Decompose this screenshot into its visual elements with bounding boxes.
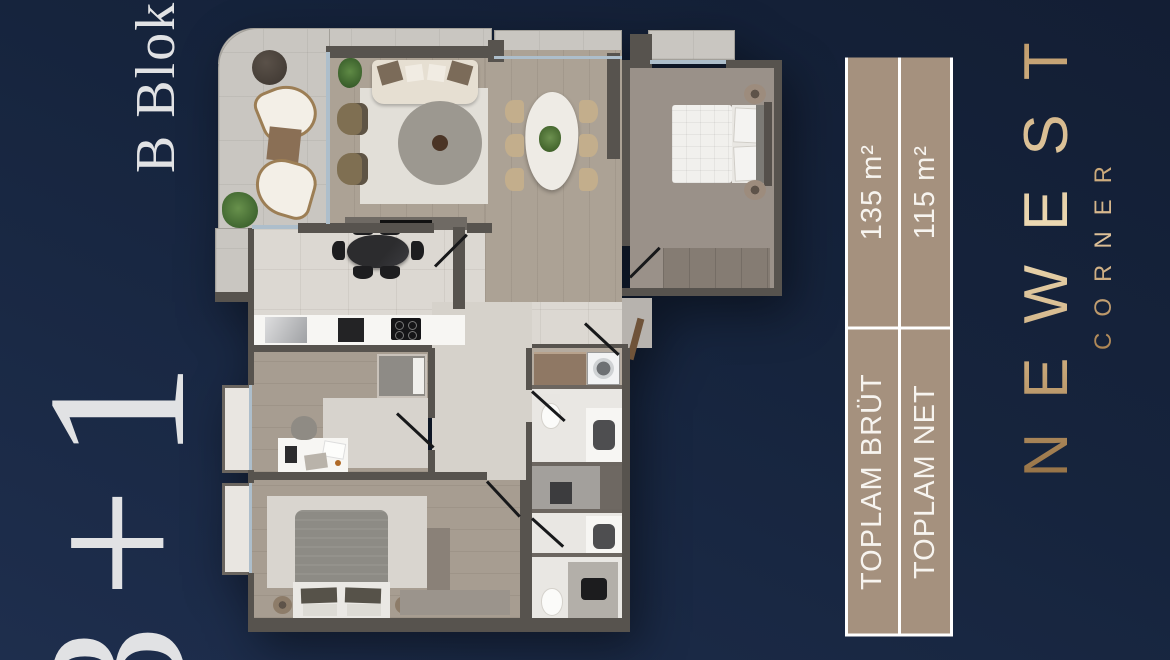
spec-table: TOPLAM BRÜT 135 m² TOPLAM NET 115 m² (845, 57, 953, 636)
burner (408, 331, 417, 340)
pillow-dark (345, 587, 382, 603)
armchair (337, 103, 368, 135)
balcony-3 (222, 483, 250, 575)
wall (622, 348, 630, 630)
wall (622, 60, 630, 246)
pillow-dark (301, 587, 338, 603)
desk-monitor (285, 446, 297, 463)
spec-table-grid: TOPLAM BRÜT 135 m² TOPLAM NET 115 m² (845, 57, 953, 636)
wall (215, 292, 251, 302)
wall (428, 348, 435, 418)
wall (298, 223, 434, 233)
desk-item (304, 453, 328, 471)
sofa-pillow (427, 64, 446, 82)
window (249, 385, 252, 470)
wall (532, 553, 622, 557)
wall (622, 288, 782, 296)
wall (630, 34, 652, 62)
master-balcony (648, 30, 735, 60)
wall (467, 223, 492, 233)
sofa-pillow (405, 64, 424, 82)
wall (532, 385, 622, 389)
master-wardrobe (663, 248, 770, 288)
armchair (337, 153, 368, 185)
terrace-side-table (266, 126, 301, 162)
shower-niche (600, 464, 622, 511)
terrace (215, 228, 251, 294)
bedroom-3-wardrobe (427, 528, 450, 590)
dining-chair (505, 168, 524, 191)
burner (408, 321, 417, 330)
wall (526, 348, 532, 390)
burner (395, 321, 404, 330)
desk-accent (335, 460, 341, 466)
kitchen-chair (380, 266, 400, 279)
burner (395, 331, 404, 340)
block-label: B Blok (121, 0, 191, 177)
double-bed-blanket (295, 510, 388, 584)
wall (532, 462, 622, 466)
headboard (764, 102, 772, 186)
sink-basin (593, 420, 615, 450)
sink-basin (593, 524, 615, 549)
spec-label-brut: TOPLAM BRÜT (848, 329, 898, 633)
pillow (347, 604, 381, 616)
headboard-cushion (756, 105, 764, 183)
brand-subtitle: CORNER (1087, 158, 1121, 358)
window (494, 56, 622, 59)
poster: B Blok 3+1 (0, 0, 1170, 660)
window (249, 483, 252, 573)
balcony-2 (222, 385, 250, 473)
wall (248, 352, 254, 385)
bedroom-3-dresser (400, 590, 510, 615)
utility-counter (534, 352, 586, 385)
nightstand-lamp (744, 84, 766, 104)
coffee-table (432, 135, 448, 151)
terrace-round-table (252, 50, 287, 85)
window (252, 225, 298, 229)
spec-value-brut: 135 m² (848, 57, 898, 326)
window (326, 52, 330, 224)
wall (607, 53, 620, 159)
kitchen-chair (353, 266, 373, 279)
desk-chair (291, 416, 317, 440)
wall (252, 472, 487, 480)
floor-plan (205, 22, 805, 660)
window (650, 60, 726, 64)
wall (248, 618, 630, 632)
toilet (541, 588, 563, 616)
single-bed-pillow (413, 358, 424, 394)
kitchen-table (347, 235, 409, 268)
unit-type-label: 3+1 (11, 310, 221, 660)
master-bed-duvet (672, 105, 732, 183)
dining-chair (505, 100, 524, 123)
dining-chair (579, 134, 598, 157)
spec-value-net: 115 m² (901, 57, 951, 326)
kitchen-chair (411, 241, 424, 260)
wall (532, 509, 622, 513)
wall (252, 345, 432, 352)
oven (338, 318, 364, 342)
brand-logo: NEWEST (1001, 25, 1091, 495)
wall (248, 228, 254, 352)
dining-chair (579, 100, 598, 123)
wall (520, 480, 532, 625)
sink-basin (581, 578, 607, 600)
wall (326, 46, 492, 58)
nightstand-lamp (744, 180, 766, 200)
washer-door (593, 358, 614, 379)
fridge (265, 317, 307, 343)
dining-chair (505, 134, 524, 157)
wall (774, 60, 782, 296)
nightstand-lamp (273, 596, 292, 614)
terrace-plant (222, 192, 258, 228)
spec-label-net: TOPLAM NET (901, 329, 951, 633)
dining-chair (579, 168, 598, 191)
kitchen-chair (332, 241, 345, 260)
shower-fixture (550, 482, 572, 504)
pillow (303, 604, 337, 616)
